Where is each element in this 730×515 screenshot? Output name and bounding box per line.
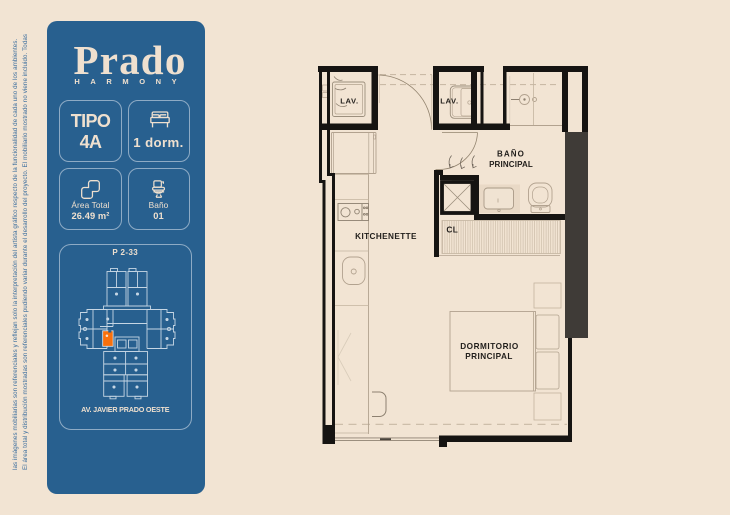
svg-text:PRINCIPAL: PRINCIPAL xyxy=(465,352,513,361)
svg-text:BAÑO: BAÑO xyxy=(497,149,525,158)
svg-text:DORMITORIO: DORMITORIO xyxy=(460,342,519,351)
svg-text:LAV.: LAV. xyxy=(440,97,458,106)
svg-text:KITCHENETTE: KITCHENETTE xyxy=(355,232,417,241)
svg-text:LAV.: LAV. xyxy=(340,96,358,105)
svg-text:CL: CL xyxy=(446,225,458,235)
svg-text:PRINCIPAL: PRINCIPAL xyxy=(489,160,533,169)
